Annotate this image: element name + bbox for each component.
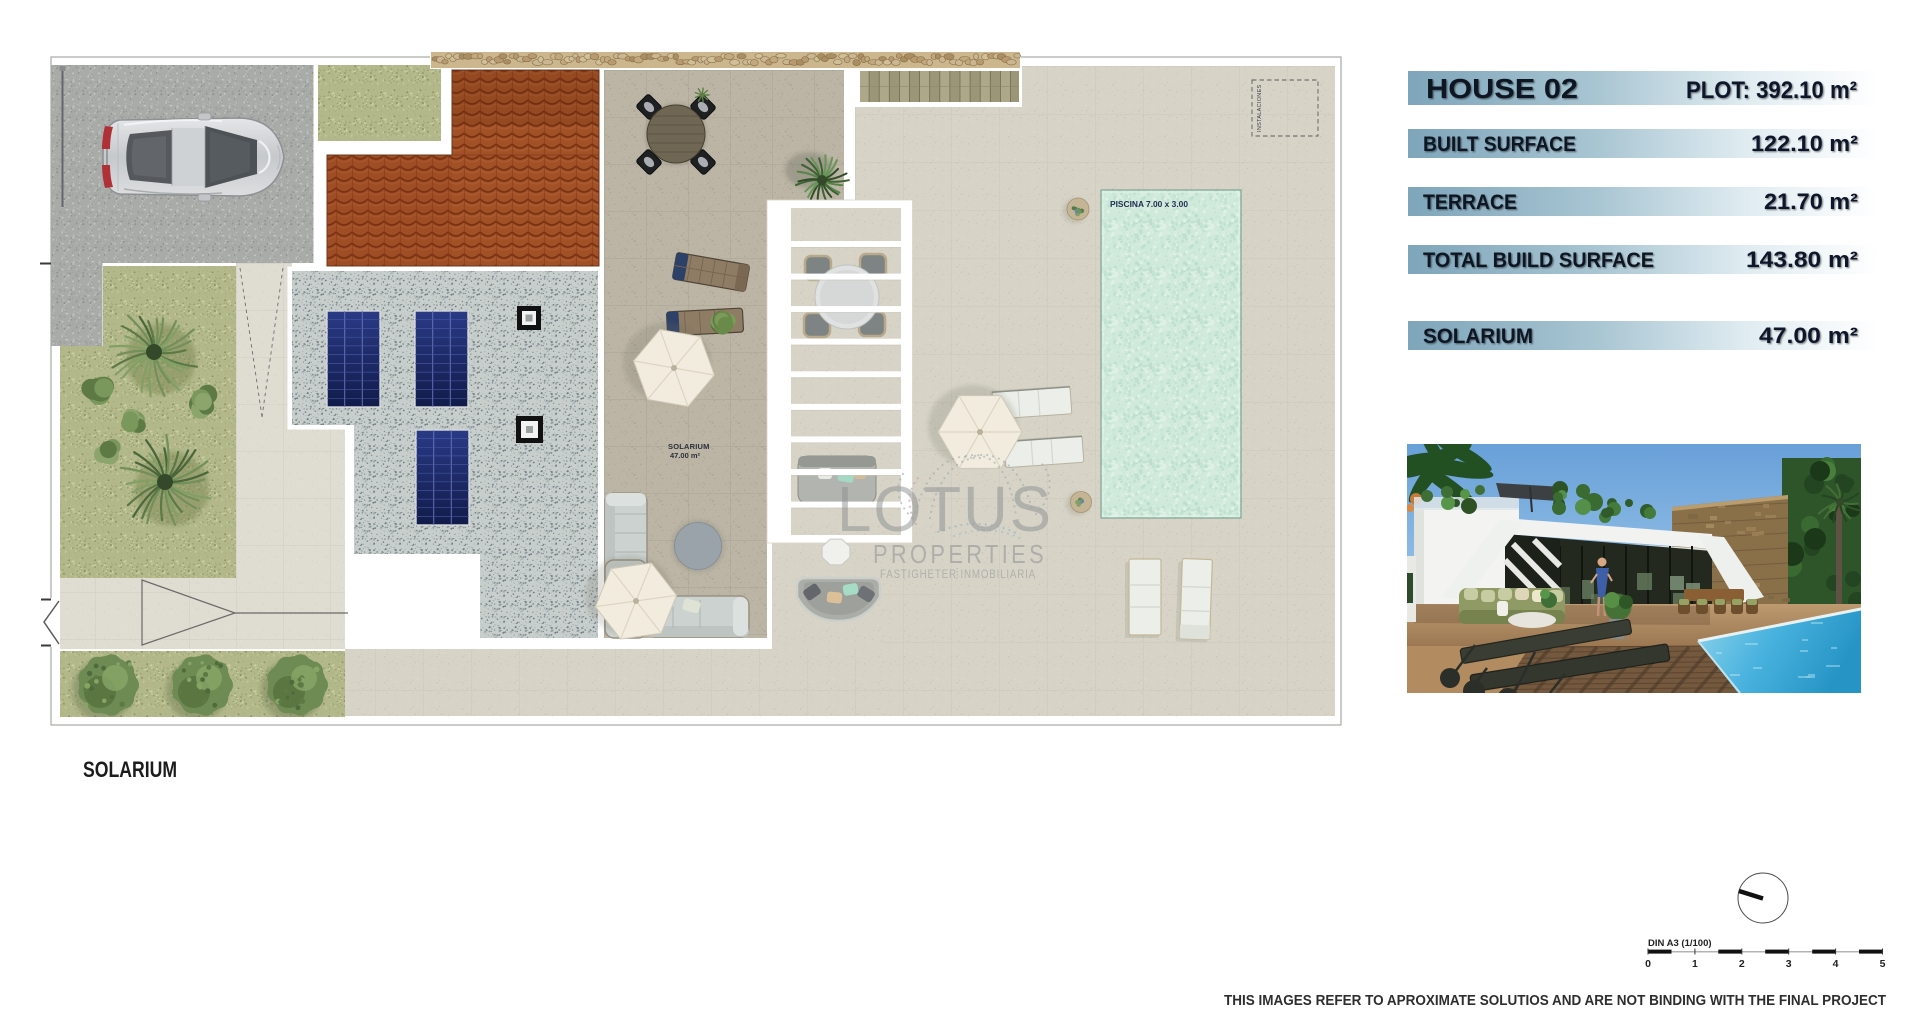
svg-text:SOLARIUM: SOLARIUM bbox=[1423, 325, 1533, 348]
svg-text:0: 0 bbox=[1645, 958, 1651, 970]
svg-text:TERRACE: TERRACE bbox=[1423, 191, 1517, 214]
svg-text:SOLARIUM: SOLARIUM bbox=[668, 442, 710, 451]
svg-text:PISCINA 7.00 x 3.00: PISCINA 7.00 x 3.00 bbox=[1110, 200, 1189, 209]
svg-text:TOTAL BUILD SURFACE: TOTAL BUILD SURFACE bbox=[1423, 249, 1654, 272]
svg-text:47.00 m²: 47.00 m² bbox=[1759, 323, 1858, 348]
svg-text:FASTIGHETER INMOBILIARIA: FASTIGHETER INMOBILIARIA bbox=[880, 567, 1036, 581]
svg-text:2: 2 bbox=[1739, 958, 1745, 970]
svg-text:PROPERTIES: PROPERTIES bbox=[873, 539, 1047, 569]
svg-text:143.80 m²: 143.80 m² bbox=[1746, 247, 1858, 272]
svg-text:INSTALACIONES: INSTALACIONES bbox=[1257, 84, 1263, 132]
svg-text:THIS IMAGES REFER TO APROXIMAT: THIS IMAGES REFER TO APROXIMATE SOLUTIOS… bbox=[1224, 993, 1886, 1009]
svg-text:LOTUS: LOTUS bbox=[837, 473, 1053, 545]
svg-text:HOUSE 02: HOUSE 02 bbox=[1426, 73, 1578, 104]
svg-text:3: 3 bbox=[1786, 958, 1792, 970]
svg-text:21.70 m²: 21.70 m² bbox=[1764, 189, 1858, 214]
svg-text:122.10 m²: 122.10 m² bbox=[1751, 131, 1858, 156]
svg-text:47.00 m²: 47.00 m² bbox=[670, 451, 701, 460]
svg-text:1: 1 bbox=[1692, 958, 1698, 970]
svg-text:SOLARIUM: SOLARIUM bbox=[83, 757, 177, 782]
svg-text:4: 4 bbox=[1833, 958, 1839, 970]
svg-text:5: 5 bbox=[1880, 958, 1886, 970]
svg-text:DIN A3 (1/100): DIN A3 (1/100) bbox=[1648, 938, 1712, 949]
svg-text:PLOT: 392.10 m²: PLOT: 392.10 m² bbox=[1686, 77, 1857, 104]
svg-text:BUILT SURFACE: BUILT SURFACE bbox=[1423, 133, 1576, 156]
